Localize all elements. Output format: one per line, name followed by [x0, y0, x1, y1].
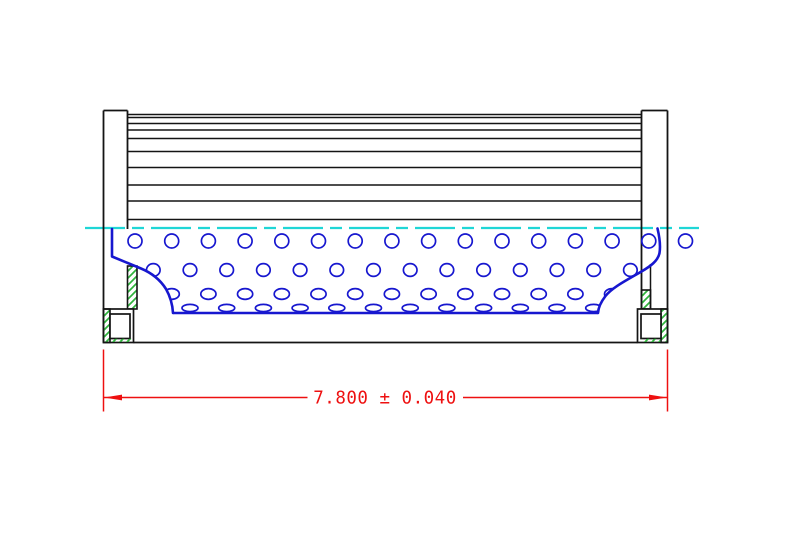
- drawing-page: 7.800 ± 0.040: [0, 0, 789, 546]
- perforation-hole: [385, 234, 399, 248]
- perforation-hole: [440, 264, 454, 277]
- media-boundary: [112, 229, 660, 314]
- perforation-hole: [495, 234, 509, 248]
- perforation-hole: [182, 304, 198, 311]
- perforation-hole: [550, 264, 564, 277]
- perforation-hole: [477, 264, 491, 277]
- perforation-hole: [421, 289, 436, 300]
- perforation-hole: [293, 264, 307, 277]
- dimension-arrow-left: [104, 395, 122, 401]
- right-seal-groove: [641, 314, 661, 339]
- right-end-cap: [638, 111, 668, 343]
- perforation-hole: [605, 234, 619, 248]
- perforation-hole: [165, 234, 179, 248]
- perforation-hole: [219, 304, 235, 311]
- perforation-hole: [384, 289, 399, 300]
- perforation-hole: [348, 289, 363, 300]
- left-seal-wall-hatch: [104, 309, 111, 343]
- perforation-hole: [255, 304, 271, 311]
- perforation-hole: [439, 304, 455, 311]
- perforation-hole: [201, 234, 215, 248]
- filter-element-drawing: 7.800 ± 0.040: [0, 0, 789, 546]
- perforation-hole: [622, 304, 638, 311]
- perforation-hole: [145, 304, 161, 311]
- perforation-hole: [531, 289, 546, 300]
- right-seal-bottom-hatch: [642, 339, 661, 342]
- perforation-hole: [514, 264, 528, 277]
- perforation-hole: [275, 234, 289, 248]
- right-cap-section-hatch: [642, 290, 651, 309]
- perforation-hole: [238, 289, 253, 300]
- perforation-hole: [312, 234, 326, 248]
- perforation-hole: [220, 264, 234, 277]
- perforation-hole: [679, 234, 693, 248]
- perforation-hole: [549, 304, 565, 311]
- dimension-arrow-right: [649, 395, 667, 401]
- left-end-cap: [104, 111, 138, 343]
- perforation-hole: [292, 304, 308, 311]
- perforation-hole: [274, 289, 289, 300]
- perforation-hole: [128, 234, 142, 248]
- perforation-hole: [458, 234, 472, 248]
- perforation-hole: [458, 289, 473, 300]
- perforation-hole: [238, 234, 252, 248]
- perforation-hole: [476, 304, 492, 311]
- left-cap-section-hatch: [128, 266, 138, 309]
- perforation-hole: [402, 304, 418, 311]
- length-dimension: 7.800 ± 0.040: [104, 350, 668, 412]
- perforation-hole: [568, 289, 583, 300]
- perforation-hole: [366, 304, 382, 311]
- perforation-hole: [201, 289, 216, 300]
- perforated-core: [127, 234, 656, 312]
- pleat-stack: [128, 115, 642, 220]
- perforation-hole: [257, 264, 271, 277]
- perforation-hole: [329, 304, 345, 311]
- perforation-hole: [183, 264, 197, 277]
- perforation-hole: [494, 289, 509, 300]
- perforated-core-overflow: [679, 234, 693, 248]
- perforation-hole: [568, 234, 582, 248]
- perforation-hole: [512, 304, 528, 311]
- perforation-hole: [532, 234, 546, 248]
- perforation-hole: [311, 289, 326, 300]
- perforation-hole: [422, 234, 436, 248]
- perforation-hole: [348, 234, 362, 248]
- perforation-hole: [367, 264, 381, 277]
- perforation-hole: [587, 264, 601, 277]
- right-seal-wall-hatch: [661, 309, 668, 343]
- left-seal-groove: [110, 314, 130, 339]
- dimension-text: 7.800 ± 0.040: [313, 389, 456, 409]
- left-seal-bottom-hatch: [111, 339, 133, 342]
- perforation-hole: [403, 264, 417, 277]
- perforation-hole: [330, 264, 344, 277]
- perforation-hole: [642, 234, 656, 248]
